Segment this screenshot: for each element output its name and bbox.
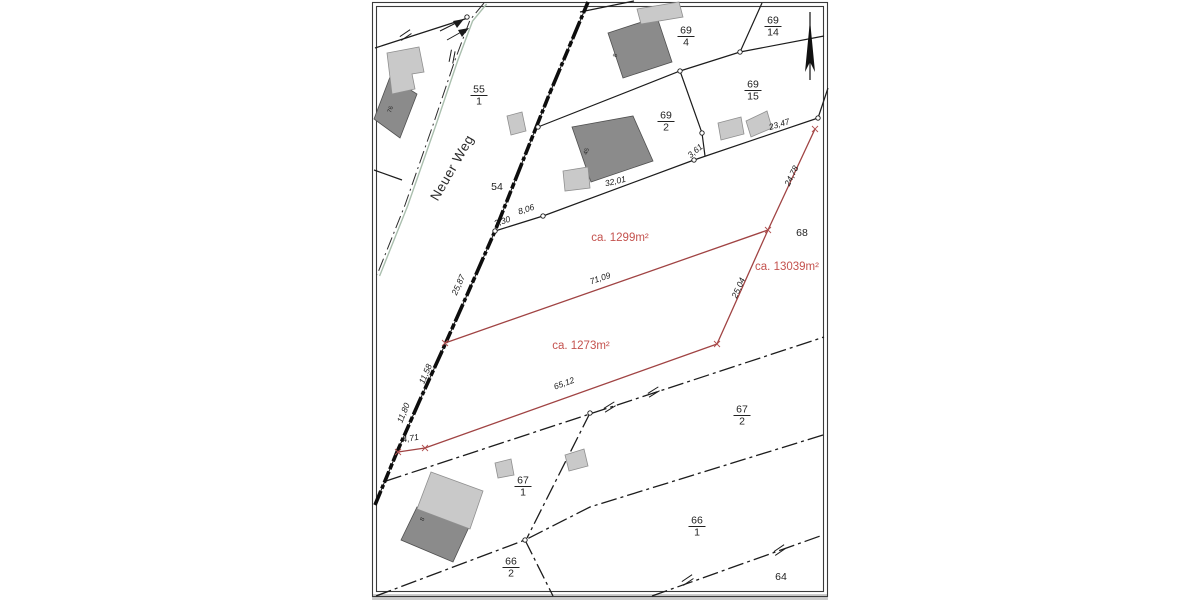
boundary-point <box>816 116 820 120</box>
parcel-number-text: 14 <box>767 27 779 39</box>
parcel-number-text: 2 <box>508 568 514 580</box>
parcel-number-text: 67 <box>736 404 748 416</box>
boundary-point <box>541 214 545 218</box>
map-page: 55169469146915692671672661662546864ca. 1… <box>0 0 1200 600</box>
boundary-point <box>678 69 682 73</box>
parcel-number-text: 69 <box>747 79 759 91</box>
parcel-number-text: 66 <box>691 515 703 527</box>
boundary-point <box>536 125 540 129</box>
boundary-point <box>523 538 527 542</box>
parcel-number-text: 15 <box>747 91 759 103</box>
boundary-point <box>700 131 704 135</box>
parcel-number-text: 4 <box>683 37 689 49</box>
area-size-label: ca. 1299m² <box>591 232 649 244</box>
parcel-number-text: 1 <box>694 527 700 539</box>
parcel-label-64: 64 <box>775 571 787 583</box>
parcel-number-text: 1 <box>520 487 526 499</box>
parcel-number-text: 69 <box>660 110 672 122</box>
parcel-number-text: 55 <box>473 84 485 96</box>
parcel-number-text: 1 <box>476 96 482 108</box>
cadastral-map: 55169469146915692671672661662546864ca. 1… <box>0 0 1200 600</box>
parcel-number-text: 67 <box>517 475 529 487</box>
boundary-point <box>493 229 497 233</box>
area-size-label: ca. 13039m² <box>755 261 819 273</box>
parcel-number-text: 69 <box>680 25 692 37</box>
parcel-number-text: 66 <box>505 556 517 568</box>
parcel-label-54: 54 <box>491 181 503 193</box>
boundary-point <box>588 411 592 415</box>
boundary-point <box>738 50 742 54</box>
parcel-number-text: 2 <box>663 122 669 134</box>
parcel-label-68: 68 <box>796 227 808 239</box>
building-light <box>563 167 590 191</box>
boundary-point <box>465 15 469 19</box>
parcel-number-text: 69 <box>767 15 779 27</box>
parcel-number-text: 2 <box>739 416 745 428</box>
area-size-label: ca. 1273m² <box>552 340 610 352</box>
